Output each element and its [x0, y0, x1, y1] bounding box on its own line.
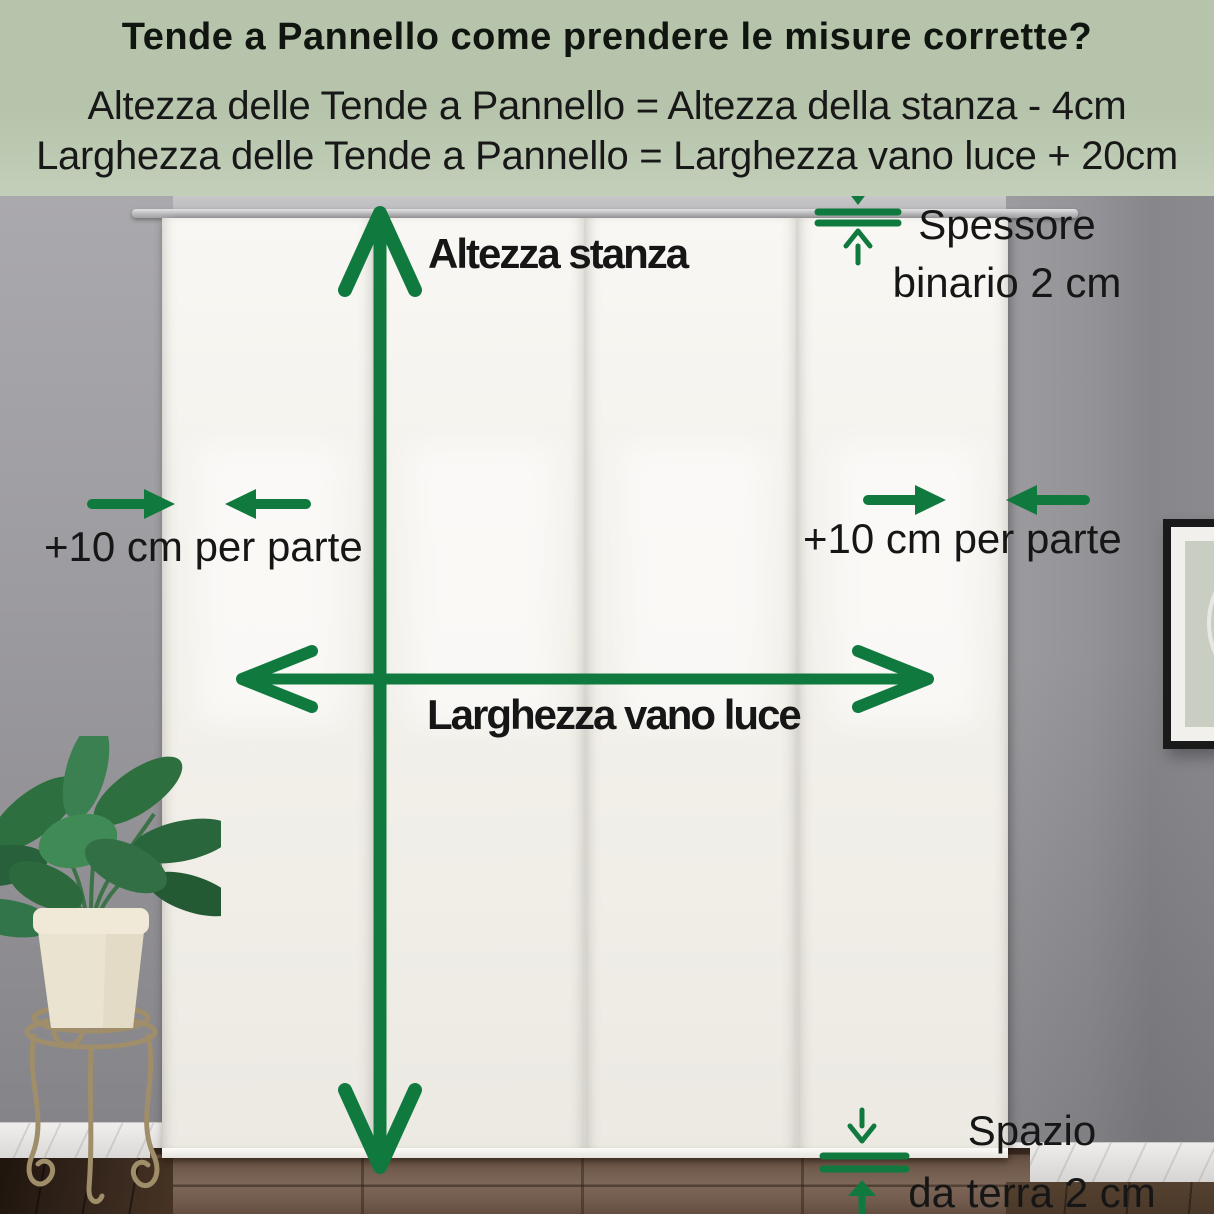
page-title: Tende a Pannello come prendere le misure…	[0, 16, 1214, 59]
curtain-panel	[584, 218, 796, 1158]
side-allowance-label-left: +10 cm per parte	[44, 526, 363, 568]
curtain-hem	[162, 1148, 1008, 1158]
picture-frame	[1163, 519, 1214, 749]
picture-frame-art	[1185, 541, 1214, 727]
curtain-panel	[796, 218, 1008, 1158]
floor-gap-label-line1: Spazio	[892, 1100, 1172, 1162]
plant-stand	[27, 1005, 157, 1202]
picture-frame-circle-motif	[1207, 563, 1214, 683]
header-band: Tende a Pannello come prendere le misure…	[0, 0, 1214, 196]
track-thickness-label: Spessore binario 2 cm	[877, 196, 1137, 312]
infographic-curtain-measuring: Tende a Pannello come prendere le misure…	[0, 0, 1214, 1214]
side-allowance-label-right: +10 cm per parte	[803, 518, 1122, 560]
formula-width: Larghezza delle Tende a Pannello = Largh…	[0, 134, 1214, 179]
floor-gap-label-line2: da terra 2 cm	[892, 1162, 1172, 1214]
track-thickness-label-line1: Spessore	[877, 196, 1137, 254]
opening-width-label: Larghezza vano luce	[427, 694, 800, 736]
formula-height: Altezza delle Tende a Pannello = Altezza…	[0, 84, 1214, 129]
curtain-panel	[372, 218, 584, 1158]
room-height-label: Altezza stanza	[428, 233, 687, 275]
plant-pot	[33, 908, 149, 1028]
panel-curtains	[162, 218, 1008, 1158]
track-thickness-label-line2: binario 2 cm	[877, 254, 1137, 312]
potted-plant	[0, 736, 221, 1214]
floor-gap-label: Spazio da terra 2 cm	[892, 1100, 1172, 1214]
